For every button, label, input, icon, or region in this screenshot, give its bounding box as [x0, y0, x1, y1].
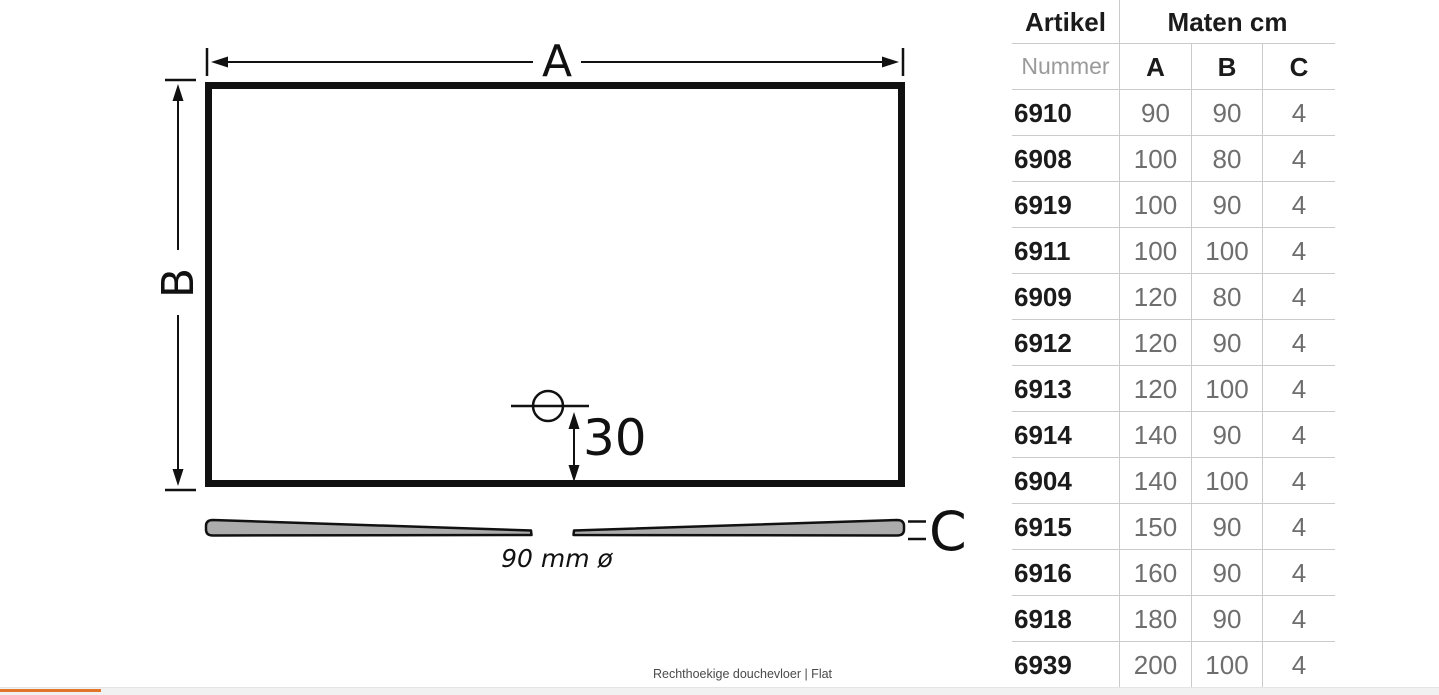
dim-a-value: 180	[1120, 596, 1192, 642]
dim-b-value: 100	[1192, 642, 1263, 688]
product-spec-page: A B 30 C 90 mm ø Artikel Maten cm	[0, 0, 1439, 695]
dim-c-value: 4	[1263, 228, 1335, 274]
dim-b-value: 90	[1192, 596, 1263, 642]
dim-b-arrow-up	[173, 84, 184, 101]
dim-c-value: 4	[1263, 504, 1335, 550]
dim-b-value: 90	[1192, 90, 1263, 136]
dim-a-value: 140	[1120, 412, 1192, 458]
dim-c-value: 4	[1263, 642, 1335, 688]
dim-a-value: 120	[1120, 320, 1192, 366]
article-number: 6914	[1012, 412, 1120, 458]
dim-b-value: 100	[1192, 366, 1263, 412]
article-number: 6919	[1012, 182, 1120, 228]
article-number: 6918	[1012, 596, 1120, 642]
dim-b-label: B	[153, 268, 204, 298]
dim-b-value: 100	[1192, 228, 1263, 274]
article-number: 6910	[1012, 90, 1120, 136]
dim-a-arrow-right	[882, 57, 899, 68]
table-header-maten: Maten cm	[1120, 0, 1335, 44]
article-number: 6913	[1012, 366, 1120, 412]
article-number: 6909	[1012, 274, 1120, 320]
dim-c-value: 4	[1263, 596, 1335, 642]
profile-section	[206, 520, 904, 536]
table-subheader-b: B	[1192, 44, 1263, 90]
dim-a-value: 160	[1120, 550, 1192, 596]
dim-b-arrow-down	[173, 469, 184, 486]
dim-c-value: 4	[1263, 90, 1335, 136]
dim-a-value: 100	[1120, 228, 1192, 274]
dim-b-value: 100	[1192, 458, 1263, 504]
dim-c-value: 4	[1263, 366, 1335, 412]
dim-a-label: A	[542, 36, 572, 87]
profile-right-wedge	[574, 520, 905, 536]
table-header-artikel: Artikel	[1012, 0, 1120, 44]
profile-left-wedge	[206, 520, 532, 536]
dim-c-value: 4	[1263, 412, 1335, 458]
article-number: 6915	[1012, 504, 1120, 550]
drain-offset-label: 30	[583, 409, 647, 467]
article-number: 6911	[1012, 228, 1120, 274]
dim-a-value: 120	[1120, 366, 1192, 412]
table-subheader-nummer: Nummer	[1012, 44, 1120, 90]
dim-a-value: 90	[1120, 90, 1192, 136]
dim-c-value: 4	[1263, 274, 1335, 320]
dim-c-value: 4	[1263, 182, 1335, 228]
article-number: 6916	[1012, 550, 1120, 596]
article-number: 6904	[1012, 458, 1120, 504]
dim-b-value: 90	[1192, 504, 1263, 550]
table-subheader-a: A	[1120, 44, 1192, 90]
dim-c-value: 4	[1263, 550, 1335, 596]
dim-b-value: 90	[1192, 550, 1263, 596]
tray-outline	[209, 86, 902, 484]
drain-diameter-label: 90 mm ø	[501, 544, 613, 573]
article-number: 6908	[1012, 136, 1120, 182]
dim-c-label: C	[929, 500, 967, 563]
caption: Rechthoekige douchevloer | Flat	[560, 667, 925, 681]
footer-accent-bar	[0, 689, 101, 692]
dim-b-value: 80	[1192, 136, 1263, 182]
dim-a-value: 100	[1120, 182, 1192, 228]
dim-a-value: 150	[1120, 504, 1192, 550]
dim-c-value: 4	[1263, 458, 1335, 504]
dim-a-value: 120	[1120, 274, 1192, 320]
dim-c-value: 4	[1263, 136, 1335, 182]
article-number: 6912	[1012, 320, 1120, 366]
table-subheader-c: C	[1263, 44, 1335, 90]
dim-b-value: 80	[1192, 274, 1263, 320]
shower-tray-diagram: A B 30 C 90 mm ø	[0, 0, 1000, 620]
dim-b-value: 90	[1192, 412, 1263, 458]
dim-b-value: 90	[1192, 182, 1263, 228]
dim-c-ticks	[908, 522, 926, 540]
dim-a-value: 100	[1120, 136, 1192, 182]
spec-table: Artikel Maten cm Nummer A B C 6910909046…	[1012, 0, 1335, 688]
dim-b-value: 90	[1192, 320, 1263, 366]
dim-a-arrow-left	[211, 57, 228, 68]
article-number: 6939	[1012, 642, 1120, 688]
footer-strip	[0, 687, 1439, 695]
dim-a-value: 140	[1120, 458, 1192, 504]
dim-c-value: 4	[1263, 320, 1335, 366]
dim-a-value: 200	[1120, 642, 1192, 688]
